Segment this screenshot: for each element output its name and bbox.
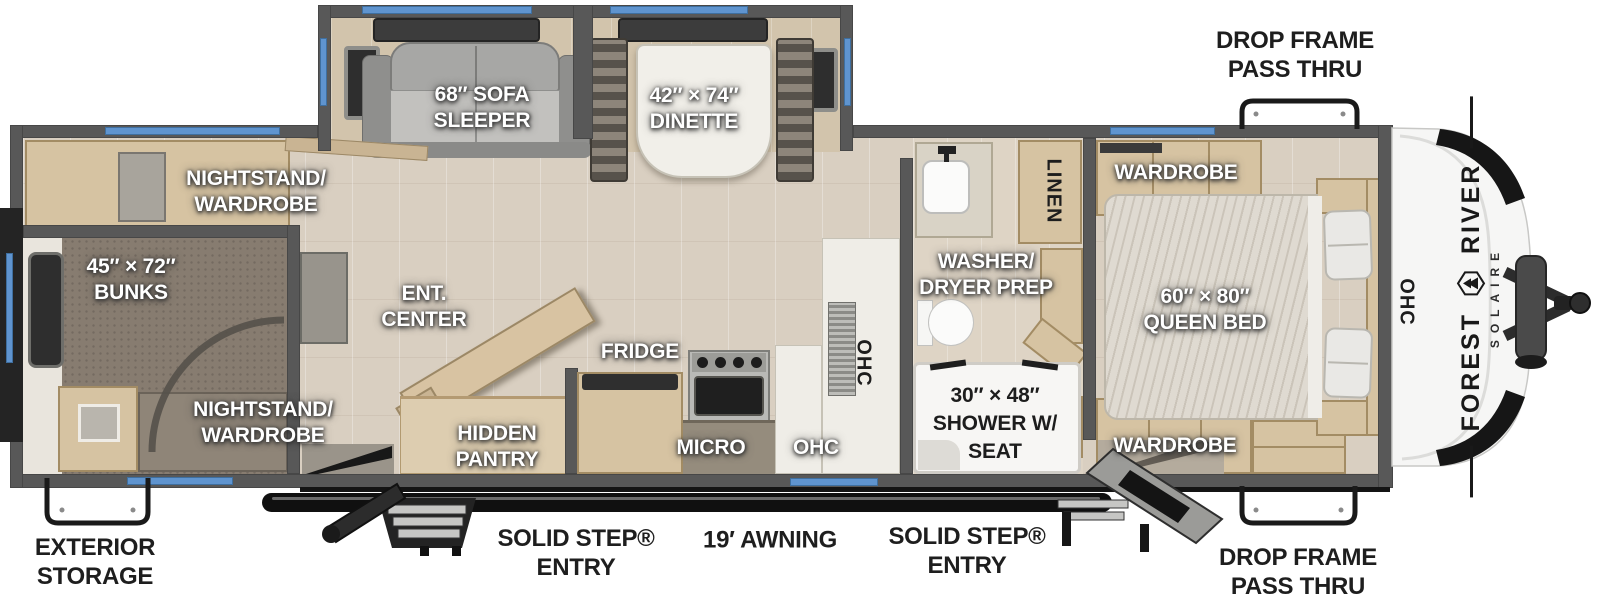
bed-fold [1308,196,1322,418]
entry-left-door [328,484,405,542]
stove-burner-strip [692,353,766,372]
window-slide-left-side [320,38,327,106]
wall-bathroom-right [1083,138,1096,440]
brand-word-forest: FOREST [1457,312,1486,431]
wardrobe-top-label: WARDROBE [1114,160,1237,186]
fridge-top [582,374,678,390]
drop-frame-top-label: DROP FRAMEPASS THRU [1216,26,1374,84]
bed-frame-post-bottom [1316,400,1372,436]
bed-pillows-top [1323,209,1373,281]
nightstand-bottom-inset [78,404,120,442]
dinette-bench-left [590,38,628,182]
nightstand-top-inset [118,152,166,222]
wardrobe-bottom-label: WARDROBE [1113,433,1236,459]
window-top-2 [1110,127,1215,135]
oven-window [694,376,764,416]
window-bottom-1 [127,477,233,485]
bunks-label: 45″ × 72″BUNKS [87,254,176,306]
hitch-ball-coupler [1570,293,1590,313]
wall-bathroom-left [900,158,913,474]
shower-label: 30″ × 48″SHOWER W/SEAT [933,382,1057,466]
brand-rule-top [1470,97,1473,149]
wall-front [1378,125,1393,488]
entry-right-label: SOLID STEP®ENTRY [888,522,1045,580]
micro-label: MICRO [677,435,746,461]
slide-window-right [810,48,838,112]
brand-word-river: RIVER [1457,163,1486,254]
rear-slide-window [6,253,13,363]
dinette-label: 42″ × 74″DINETTE [650,83,739,135]
rv-floorplan: 68″ SOFASLEEPER 42″ × 74″DINETTE NIGHTST… [0,0,1600,610]
ohc-counter-label: OHC [852,339,875,386]
dinette-bench-right [776,38,814,182]
window-slide-right-side [844,38,851,106]
overhead-cabinet-dinette [618,18,768,42]
entry-left-label: SOLID STEP®ENTRY [497,524,654,582]
tongue-jack [1516,256,1546,360]
sofa-label: 68″ SOFASLEEPER [434,82,531,134]
window-bottom-2 [790,478,878,486]
fireplace-unit [300,252,348,344]
rear-bunk-slide-box [0,208,23,442]
window-slide-2 [610,6,748,14]
bunk-window [28,252,64,368]
nightstand-bottom-label: NIGHTSTAND/WARDROBE [193,397,333,449]
brand-rule-bottom [1470,445,1473,497]
ohc-front-label: OHC [1395,278,1418,325]
ohc-kitchen-label: OHC [793,435,839,461]
bracket-bottom-right [1242,486,1355,523]
wall-slide-divider [573,5,593,139]
bed-pillows-bottom [1323,327,1373,399]
awning-label: 19′ AWNING [703,526,837,555]
bath-faucet-stem [944,146,949,162]
window-top-1 [105,127,280,135]
drop-frame-bottom-label: DROP FRAMEPASS THRU [1219,543,1377,601]
linen-label: LINEN [1042,159,1065,224]
hitch-icon [1505,256,1590,369]
model-name: SOLAIRE [1488,246,1502,348]
wall-bunkroom-horizontal [23,225,300,238]
bed-frame-post-top [1316,178,1372,214]
hidden-pantry-label: HIDDENPANTRY [456,421,539,473]
exterior-storage-label: EXTERIORSTORAGE [35,533,155,591]
overhead-cabinet-sofa [373,18,540,42]
awning-bar [262,487,1390,512]
window-slide-1 [362,6,532,14]
bath-sink [922,160,970,214]
washer-dryer-label: WASHER/DRYER PREP [919,249,1053,301]
wardrobe-top-shadow [1100,143,1162,153]
ent-center-label: ENT.CENTER [381,281,466,333]
toilet-bowl [928,299,974,346]
queen-bed-label: 60″ × 80″QUEEN BED [1143,284,1266,336]
nightstand-top-label: NIGHTSTAND/WARDROBE [186,166,326,218]
forest-river-logo-icon [1456,268,1486,298]
fridge-label: FRIDGE [601,339,679,365]
